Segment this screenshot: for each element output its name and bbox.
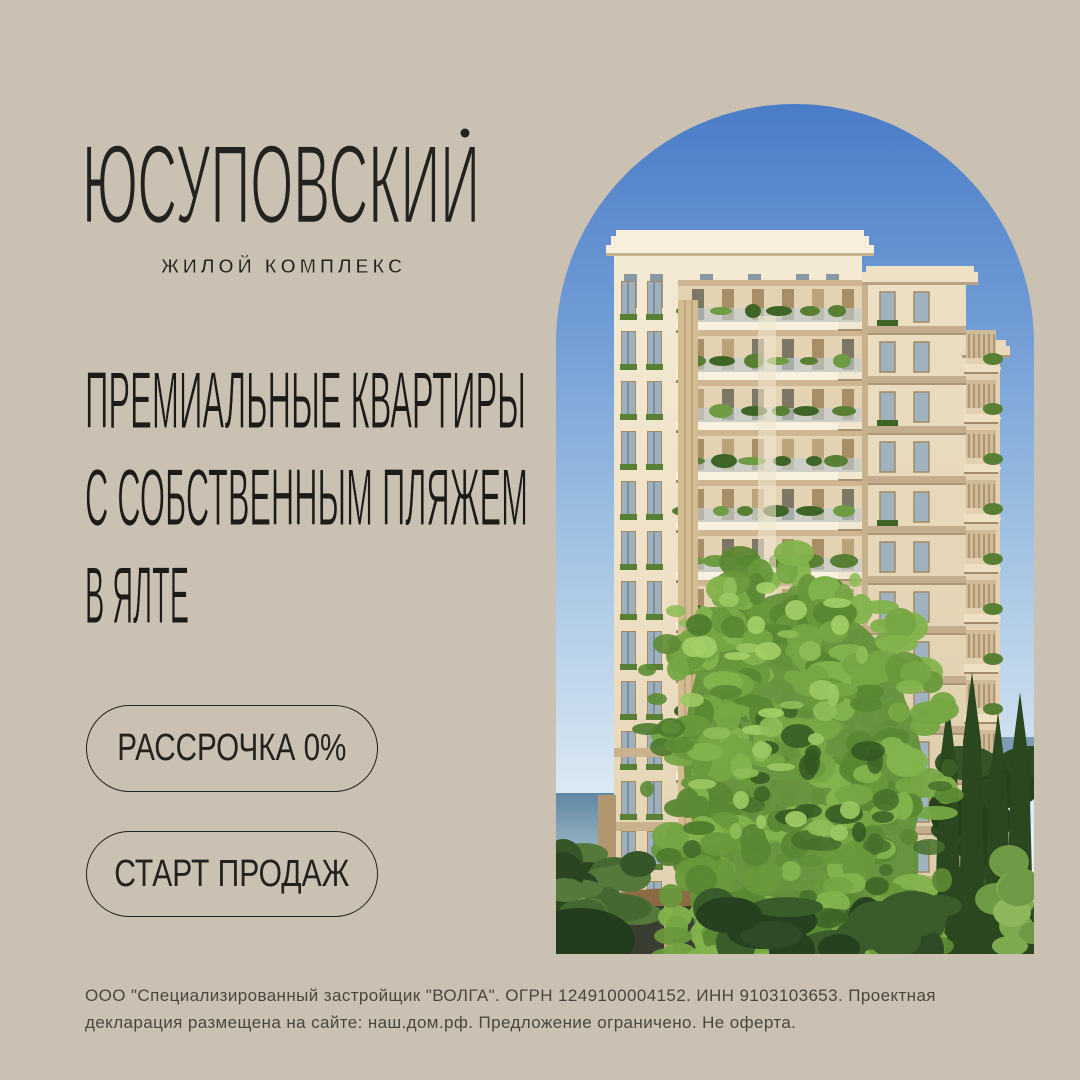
svg-text:С СОБСТВЕННЫМ ПЛЯЖЕМ: С СОБСТВЕННЫМ ПЛЯЖЕМ <box>85 453 528 543</box>
svg-text:В ЯЛТЕ: В ЯЛТЕ <box>85 551 189 641</box>
svg-text:ЮСУПОВСКИЙ: ЮСУПОВСКИЙ <box>82 122 480 244</box>
svg-text:ПРЕМИАЛЬНЫЕ КВАРТИРЫ: ПРЕМИАЛЬНЫЕ КВАРТИРЫ <box>85 356 526 446</box>
